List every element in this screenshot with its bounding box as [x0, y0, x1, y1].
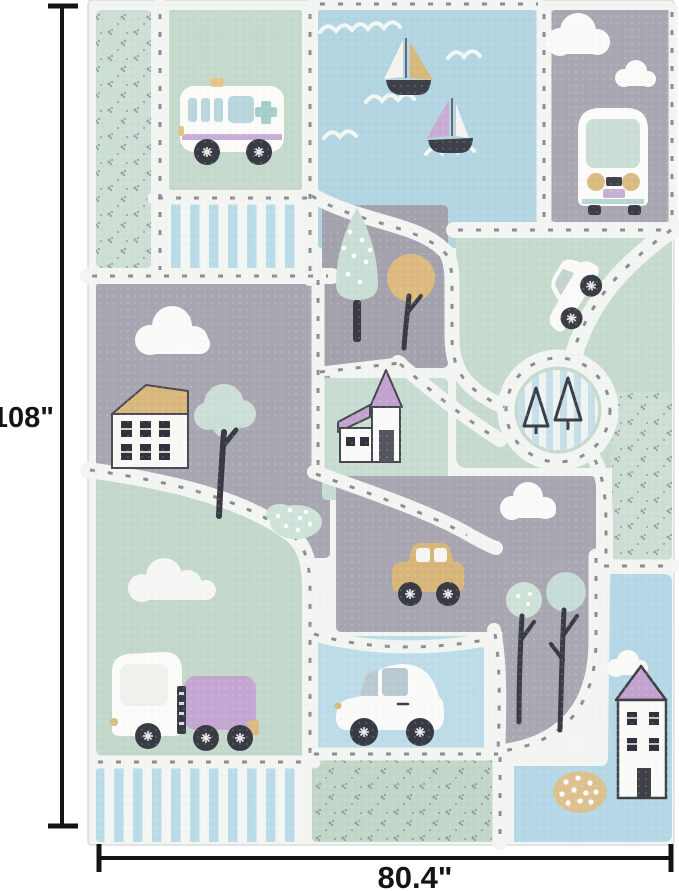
- rug: [88, 0, 674, 845]
- height-dimension-label: 108": [0, 402, 54, 434]
- rug-illustration: 108" 80.4": [0, 0, 679, 891]
- product-image: 108" 80.4": [0, 0, 679, 891]
- rug-texture: [88, 0, 674, 845]
- width-dimension-label: 80.4": [377, 860, 452, 891]
